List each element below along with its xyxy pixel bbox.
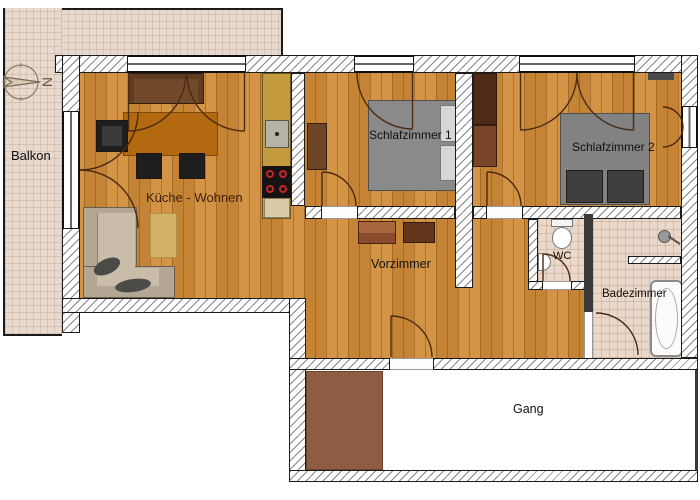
wc-label: WC — [553, 250, 571, 262]
bathroom-label: Badezimmer — [602, 288, 667, 300]
hallway-label: Vorzimmer — [371, 257, 431, 271]
balcony-label: Balkon — [11, 148, 51, 163]
door-swing-arcs — [0, 0, 700, 500]
corridor-label: Gang — [513, 402, 544, 416]
floor-plan: N — [0, 0, 700, 500]
kitchen-living-label: Küche - Wohnen — [146, 190, 243, 205]
bedroom1-label: Schlafzimmer 1 — [369, 128, 452, 142]
bedroom2-label: Schlafzimmer 2 — [572, 140, 655, 154]
